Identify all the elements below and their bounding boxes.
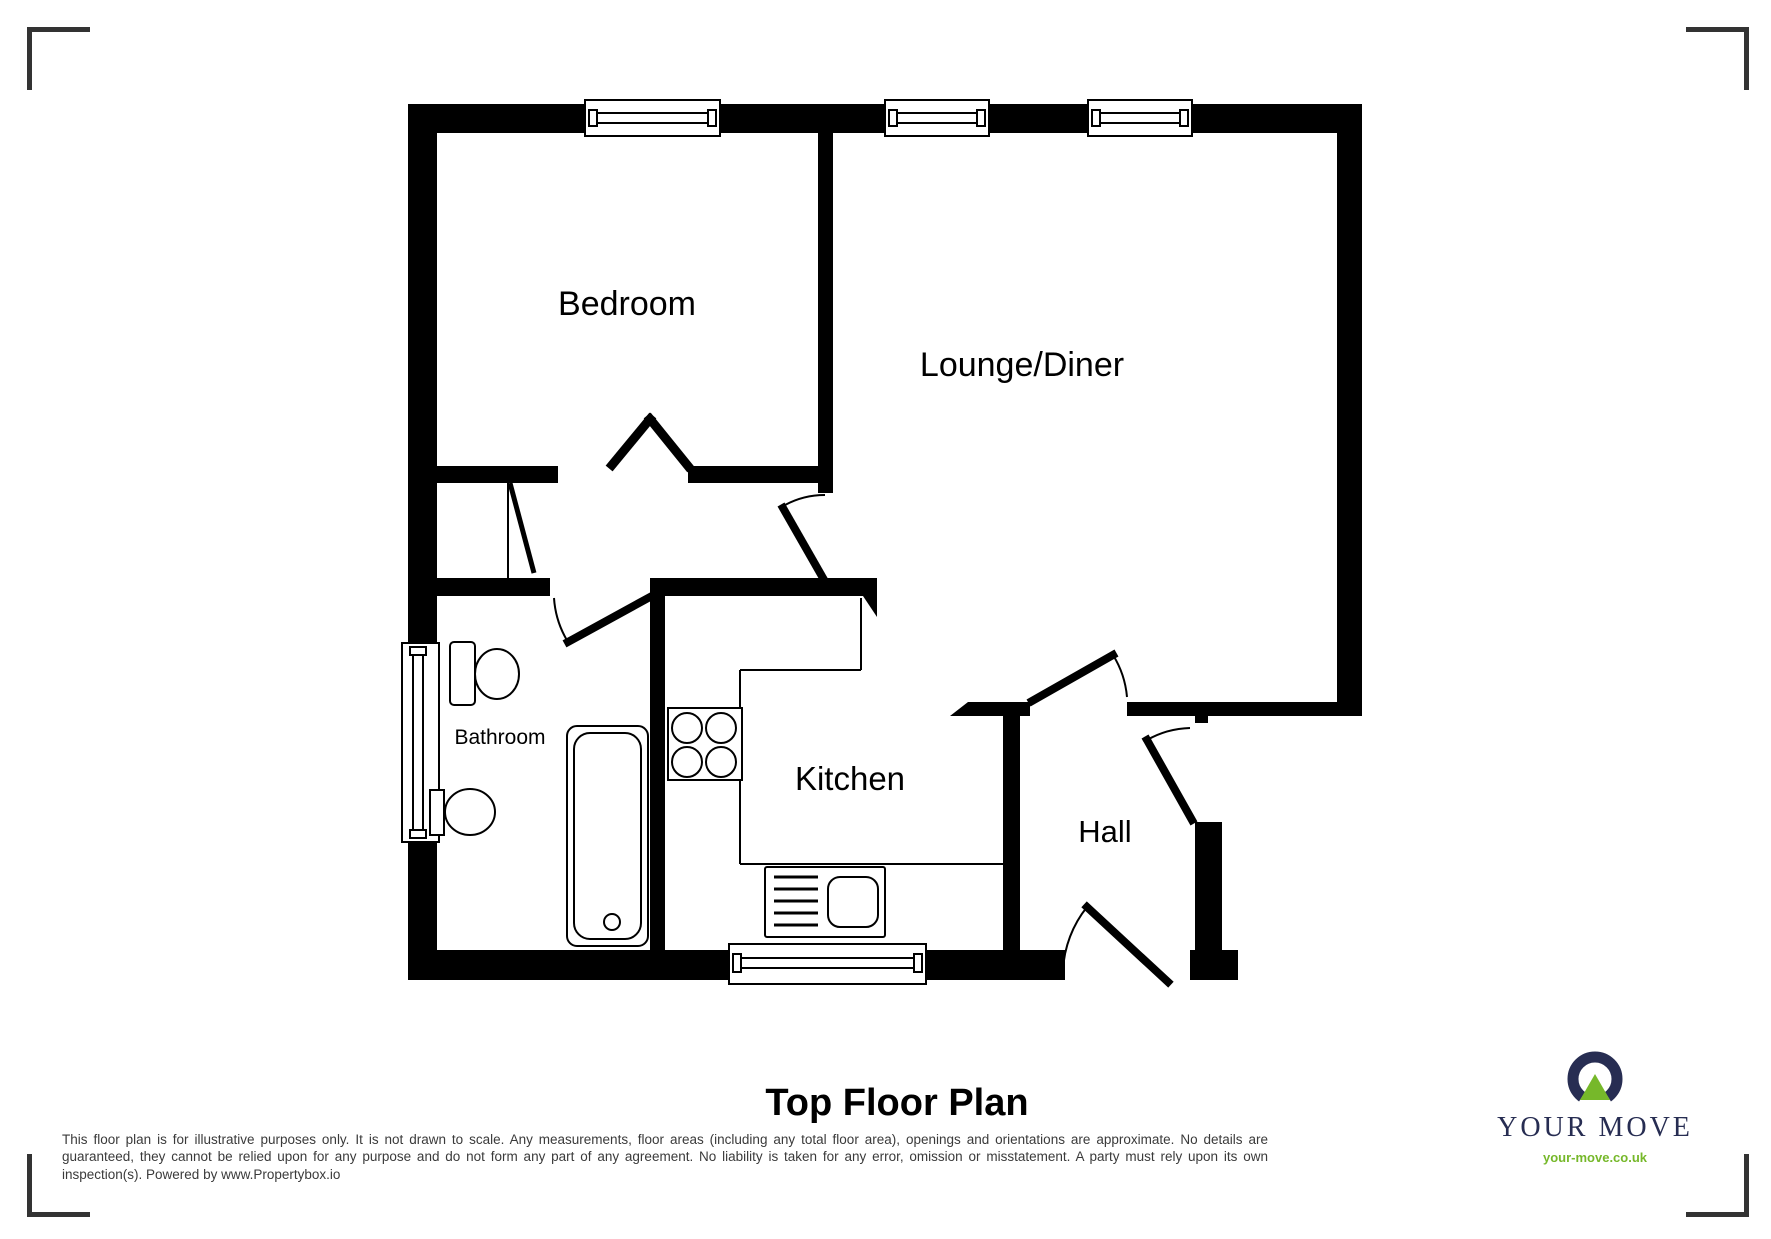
hall-side-door [1147, 728, 1192, 820]
cupboard-door [508, 483, 534, 578]
wall-kitchen-hall-divider [1003, 702, 1020, 950]
hall-label: Hall [1078, 814, 1131, 849]
window-bedroom [585, 100, 720, 136]
wall-kitchen-top [650, 578, 877, 596]
wall-hall-top [968, 702, 1030, 716]
wall-lounge-bottom [1127, 702, 1362, 716]
kitchen-label: Kitchen [795, 760, 905, 797]
wall-bedroom-bottom-left [437, 466, 558, 483]
wall-hall-top-tip [950, 702, 968, 716]
your-move-logo: YOUR MOVE your-move.co.uk [1470, 1050, 1720, 1165]
wall-bedroom-lounge-divider [818, 133, 833, 493]
bedroom-double-door [612, 419, 688, 466]
kitchen-sink-fixture [765, 867, 885, 937]
lounge-corridor-door [783, 495, 825, 578]
bathroom-door [554, 597, 650, 642]
wall-right [1337, 104, 1362, 716]
logo-website-text: your-move.co.uk [1470, 1150, 1720, 1165]
windows [402, 100, 1192, 984]
toilet-fixture [450, 642, 519, 705]
front-door [1063, 907, 1168, 982]
wall-hall-right-lower [1195, 822, 1222, 950]
your-move-logo-icon [1560, 1050, 1630, 1108]
wall-bottom-right [1190, 950, 1238, 980]
plan-title: Top Floor Plan [647, 1082, 1147, 1125]
lounge-label: Lounge/Diner [920, 346, 1124, 384]
window-lounge-1 [885, 100, 989, 136]
disclaimer-text: This floor plan is for illustrative purp… [62, 1131, 1268, 1183]
bathtub-fixture [567, 726, 648, 946]
wall-bottom-middle [926, 950, 1065, 980]
kitchen-counter-lines [740, 598, 1003, 864]
wall-left [408, 104, 437, 980]
floorplan-page: Bedroom Lounge/Diner Kitchen Hall Bathro… [0, 0, 1771, 1239]
wall-hall-right-upper [1195, 702, 1208, 723]
room-labels: Bedroom Lounge/Diner Kitchen Hall Bathro… [454, 285, 1131, 849]
bathroom-label: Bathroom [454, 726, 545, 749]
window-lounge-2 [1088, 100, 1192, 136]
window-kitchen [729, 944, 926, 984]
wall-bathroom-top [437, 578, 550, 596]
hall-lounge-door [1032, 655, 1127, 701]
hob-fixture [668, 708, 742, 780]
wall-bottom-left [408, 950, 729, 980]
logo-brand-text: YOUR MOVE [1470, 1112, 1720, 1144]
wall-bedroom-bottom-right [688, 466, 833, 483]
walls [408, 104, 1362, 980]
wall-kitchen-top-tip [863, 596, 877, 617]
wall-kitchen-left [650, 578, 665, 950]
basin-fixture [430, 789, 495, 835]
bedroom-label: Bedroom [558, 285, 696, 323]
